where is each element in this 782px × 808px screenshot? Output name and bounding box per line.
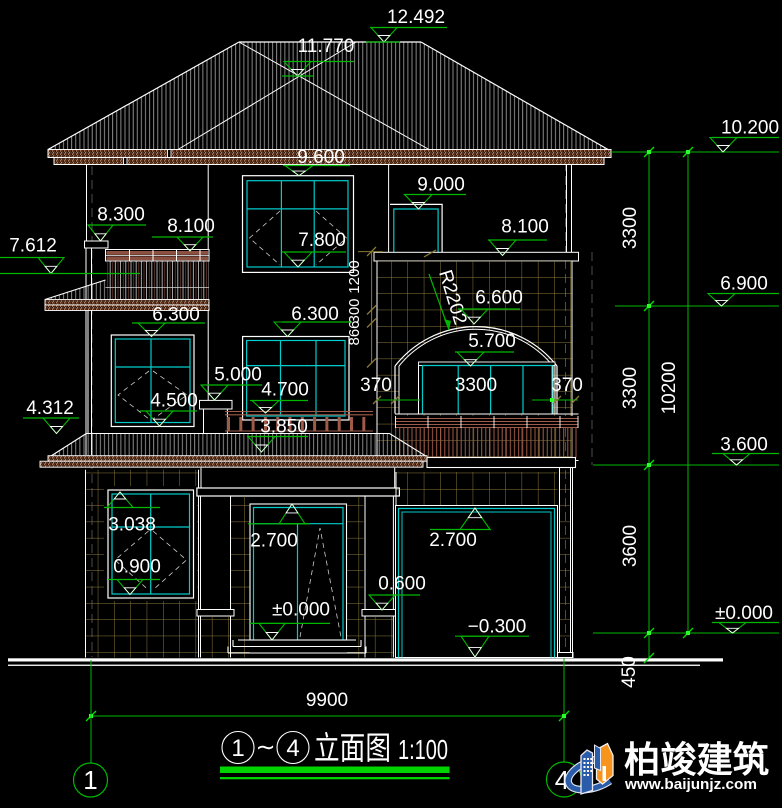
svg-text:370: 370	[551, 375, 583, 396]
svg-text:1200: 1200	[346, 260, 363, 293]
svg-text:9900: 9900	[306, 690, 348, 711]
svg-text:4.500: 4.500	[150, 391, 198, 412]
svg-text:2.700: 2.700	[250, 531, 298, 552]
svg-text:3600: 3600	[620, 525, 641, 567]
svg-text:±0.000: ±0.000	[715, 603, 773, 624]
svg-text:4.700: 4.700	[261, 380, 309, 401]
svg-text:6.600: 6.600	[475, 288, 523, 309]
svg-text:4: 4	[286, 735, 299, 762]
svg-text:9.000: 9.000	[417, 175, 465, 196]
svg-text:www.baijunjz.com: www.baijunjz.com	[624, 776, 757, 793]
svg-text:9.600: 9.600	[297, 147, 345, 168]
svg-text:8.300: 8.300	[97, 205, 145, 226]
svg-text:10.200: 10.200	[721, 118, 779, 139]
svg-text:1:100: 1:100	[398, 734, 448, 765]
svg-text:2.700: 2.700	[429, 530, 477, 551]
svg-text:3.038: 3.038	[108, 515, 156, 536]
svg-text:370: 370	[360, 375, 392, 396]
svg-text:12.492: 12.492	[387, 7, 445, 28]
svg-text:−0.300: −0.300	[468, 617, 527, 638]
svg-text:11.770: 11.770	[298, 36, 355, 57]
svg-text:5.700: 5.700	[468, 331, 516, 352]
svg-text:5.000: 5.000	[214, 365, 262, 386]
svg-text:0.900: 0.900	[113, 557, 161, 578]
svg-text:10200: 10200	[659, 362, 680, 415]
svg-text:1: 1	[83, 765, 97, 795]
svg-text:7.800: 7.800	[298, 230, 346, 251]
svg-text:6.900: 6.900	[720, 274, 768, 295]
svg-text:1: 1	[231, 735, 244, 762]
svg-text:3.850: 3.850	[260, 417, 308, 438]
svg-text:450: 450	[619, 656, 640, 688]
svg-text:3.600: 3.600	[720, 435, 768, 456]
svg-text:立面图: 立面图	[314, 730, 391, 766]
svg-text:3300: 3300	[455, 375, 497, 396]
svg-text:3300: 3300	[620, 207, 641, 249]
svg-text:866: 866	[346, 320, 363, 345]
svg-text:6.300: 6.300	[152, 305, 200, 326]
svg-text:300: 300	[346, 298, 363, 323]
svg-text:8.100: 8.100	[501, 217, 549, 238]
svg-text:3300: 3300	[620, 367, 641, 409]
svg-text:8.100: 8.100	[167, 216, 215, 237]
svg-text:±0.000: ±0.000	[272, 600, 330, 621]
svg-text:柏竣建筑: 柏竣建筑	[624, 739, 769, 780]
svg-text:4.312: 4.312	[26, 398, 74, 419]
svg-text:0.600: 0.600	[378, 574, 426, 595]
svg-text:∼: ∼	[255, 734, 275, 761]
svg-text:7.612: 7.612	[9, 236, 57, 257]
